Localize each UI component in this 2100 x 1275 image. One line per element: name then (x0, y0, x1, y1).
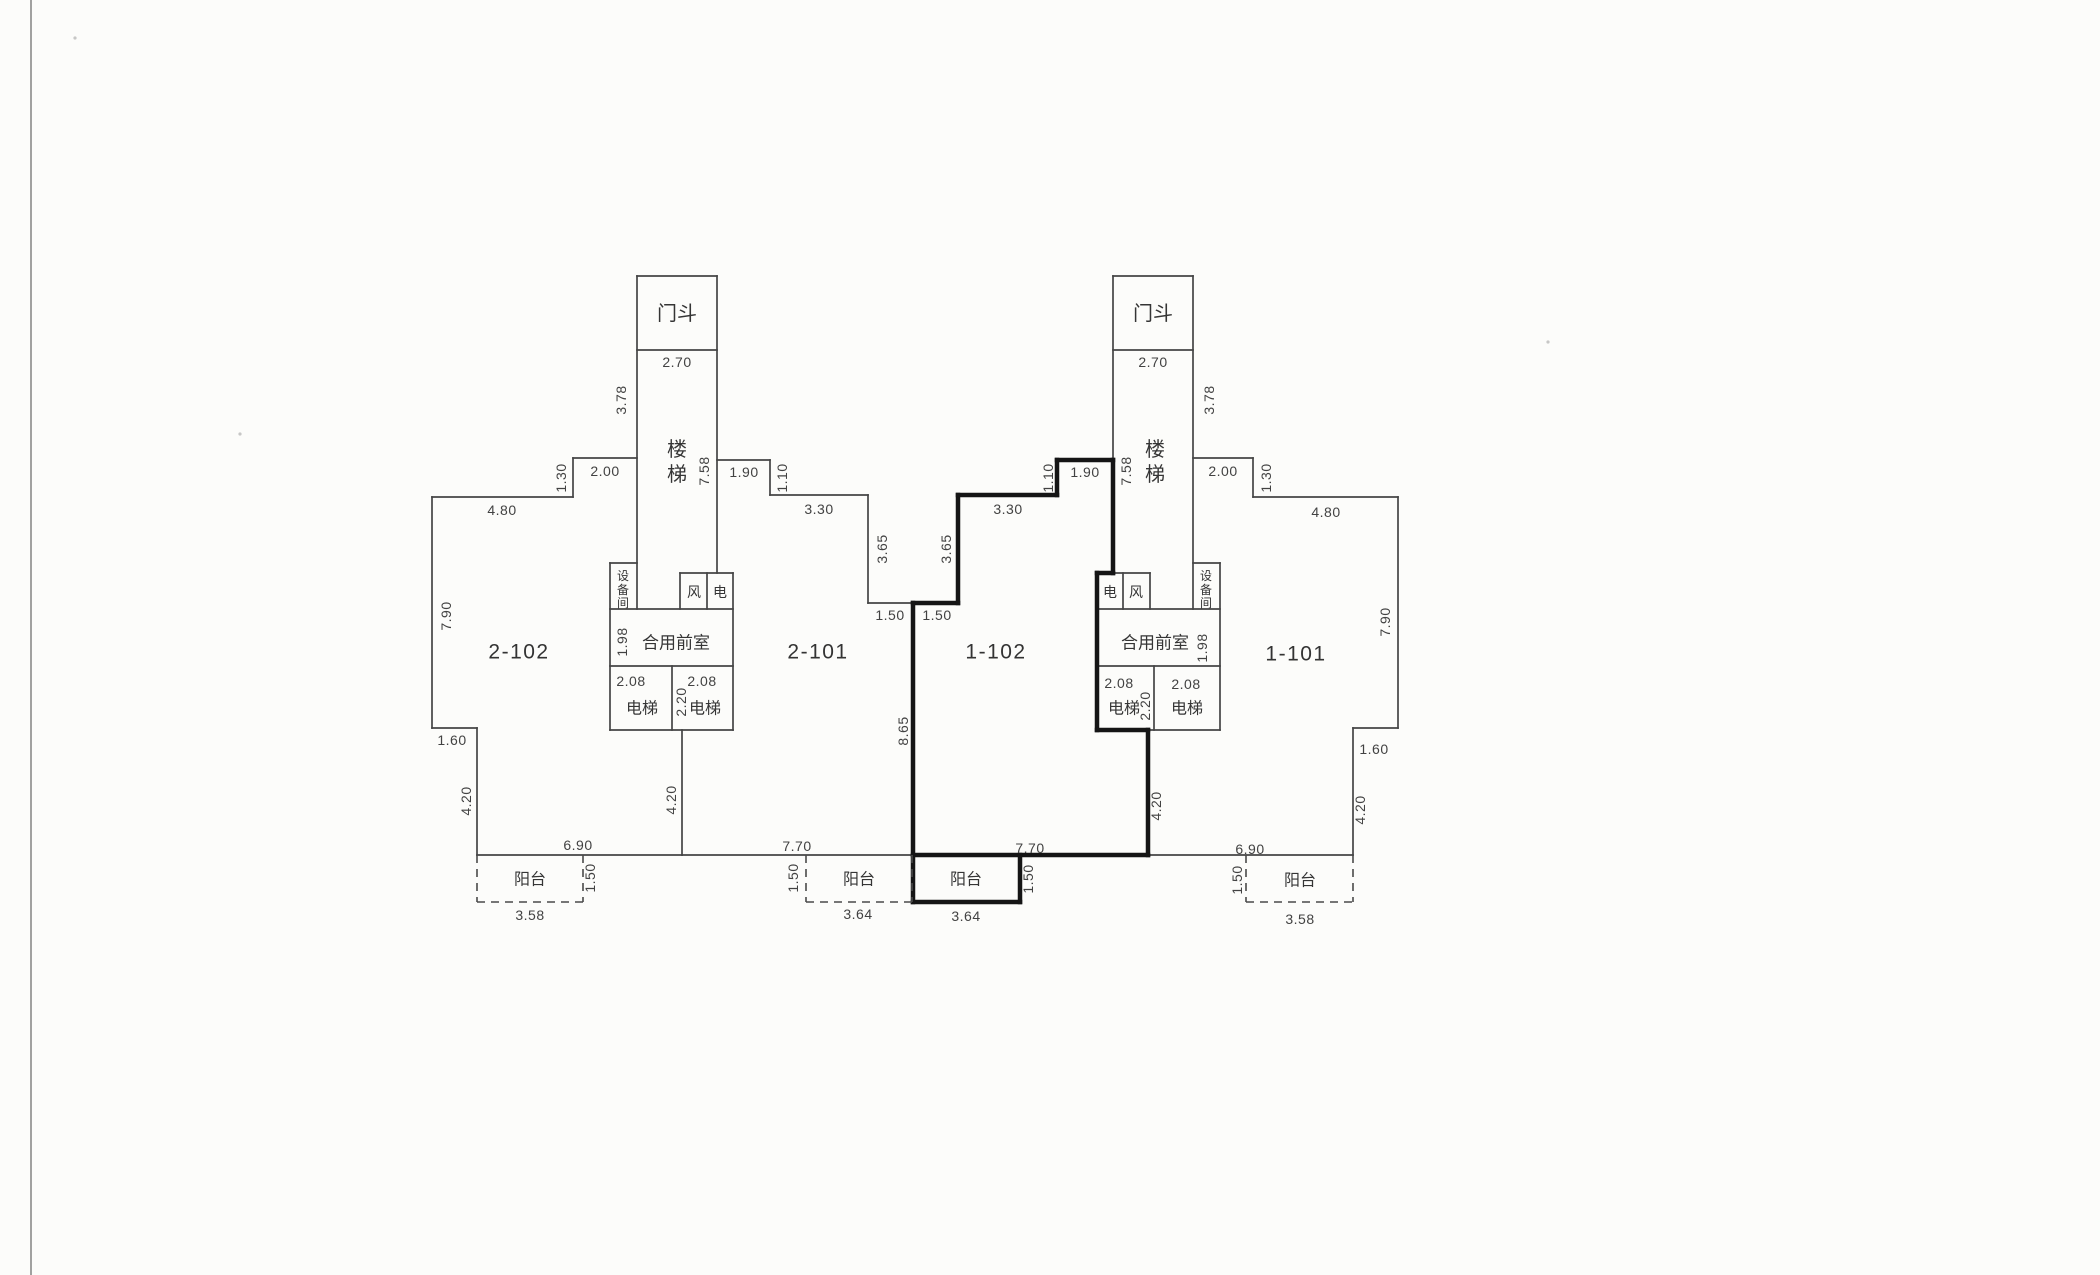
room-name-label: 梯 (1145, 463, 1165, 486)
room-name-label: 电梯 (689, 700, 721, 718)
scan-speck (73, 36, 76, 39)
dimension-label: 7.90 (1377, 607, 1393, 636)
dimension-label: 4.20 (458, 786, 474, 815)
room-name-label: 梯 (667, 463, 687, 486)
dimension-label: 1.50 (922, 607, 951, 623)
scan-speck (1546, 340, 1549, 343)
unit-number-label: 1-102 (965, 641, 1026, 664)
dimension-label: 2.70 (662, 354, 691, 370)
floor-plan-drawing: 2-1022-1011-1021-101门斗门斗楼梯楼梯设备间设备间风电电风合用… (0, 0, 2100, 1275)
room-name-label: 阳台 (950, 871, 982, 889)
room-name-label: 楼 (1145, 438, 1165, 461)
dimension-label: 7.58 (1118, 456, 1134, 485)
room-name-label: 合用前室 (642, 634, 710, 653)
room-name-label: 设 (617, 569, 629, 583)
room-name-label: 楼 (667, 438, 687, 461)
room-name-label: 门斗 (1133, 302, 1173, 325)
dimension-label: 4.20 (1148, 791, 1164, 820)
dimension-label: 3.58 (515, 907, 544, 923)
dimension-label: 7.58 (696, 456, 712, 485)
room-name-label: 电梯 (1171, 700, 1203, 718)
walls-layer (432, 276, 1398, 902)
dimension-label: 3.64 (843, 906, 872, 922)
dimension-label: 1.98 (1194, 633, 1210, 662)
dimension-label: 2.20 (673, 687, 689, 716)
dimension-label: 2.08 (1104, 675, 1133, 691)
dimension-label: 1.90 (729, 464, 758, 480)
scanned-floor-plan-page: 2-1022-1011-1021-101门斗门斗楼梯楼梯设备间设备间风电电风合用… (0, 0, 2100, 1275)
scan-artifacts (31, 0, 1550, 1275)
dimension-label: 1.30 (553, 463, 569, 492)
room-name-label: 阳台 (1284, 872, 1316, 890)
room-name-label: 电 (1103, 584, 1117, 600)
dimension-label: 1.98 (614, 627, 630, 656)
dimension-label: 1.50 (875, 607, 904, 623)
room-name-label: 阳台 (843, 871, 875, 889)
room-name-label: 风 (687, 584, 701, 600)
dimension-label: 4.80 (1311, 504, 1340, 520)
scan-speck (238, 432, 241, 435)
dimension-label: 3.30 (804, 501, 833, 517)
dimension-label: 3.65 (874, 534, 890, 563)
dimension-label: 1.90 (1070, 464, 1099, 480)
room-name-label: 间 (617, 596, 629, 610)
room-name-label: 风 (1129, 584, 1143, 600)
dimension-label: 1.10 (774, 463, 790, 492)
dimension-label: 1.50 (1229, 865, 1245, 894)
dimension-label: 7.90 (438, 601, 454, 630)
dimension-label: 1.30 (1258, 463, 1274, 492)
dimension-label: 2.08 (616, 673, 645, 689)
dimension-label: 2.70 (1138, 354, 1167, 370)
unit-number-label: 2-101 (787, 641, 848, 664)
dimension-label: 7.70 (1015, 840, 1044, 856)
dimension-label: 1.50 (582, 863, 598, 892)
room-name-label: 备 (617, 583, 629, 597)
dimension-label: 3.78 (613, 385, 629, 414)
unit-number-label: 1-101 (1265, 643, 1326, 666)
dimension-label: 3.30 (993, 501, 1022, 517)
room-name-label: 电梯 (626, 700, 658, 718)
room-name-label: 备 (1200, 583, 1212, 597)
dimension-label: 6.90 (563, 837, 592, 853)
dimension-label: 8.65 (895, 716, 911, 745)
room-name-label: 门斗 (657, 302, 697, 325)
room-name-label: 设 (1200, 569, 1212, 583)
room-name-label: 电梯 (1108, 700, 1140, 718)
room-name-label: 间 (1200, 596, 1212, 610)
room-name-label: 阳台 (514, 871, 546, 889)
dimension-label: 3.78 (1201, 385, 1217, 414)
dimension-label: 1.60 (437, 732, 466, 748)
dimension-label: 4.20 (663, 785, 679, 814)
dimension-label: 1.50 (1020, 864, 1036, 893)
dimension-label: 2.20 (1137, 691, 1153, 720)
dimension-label: 1.50 (785, 863, 801, 892)
dimension-label: 6.90 (1235, 841, 1264, 857)
dimension-label: 4.80 (487, 502, 516, 518)
dimension-label: 2.00 (1208, 463, 1237, 479)
room-name-label: 电 (713, 584, 727, 600)
dimension-label: 4.20 (1352, 795, 1368, 824)
dimension-label: 3.65 (938, 534, 954, 563)
dimension-label: 7.70 (782, 838, 811, 854)
dimension-label: 2.08 (687, 673, 716, 689)
dimension-label: 2.00 (590, 463, 619, 479)
dimension-label: 2.08 (1171, 676, 1200, 692)
dimension-label: 1.10 (1040, 463, 1056, 492)
unit-number-label: 2-102 (488, 641, 549, 664)
dimension-label: 1.60 (1359, 741, 1388, 757)
room-name-label: 合用前室 (1121, 634, 1189, 653)
dimension-label: 3.58 (1285, 911, 1314, 927)
dimension-label: 3.64 (951, 908, 980, 924)
